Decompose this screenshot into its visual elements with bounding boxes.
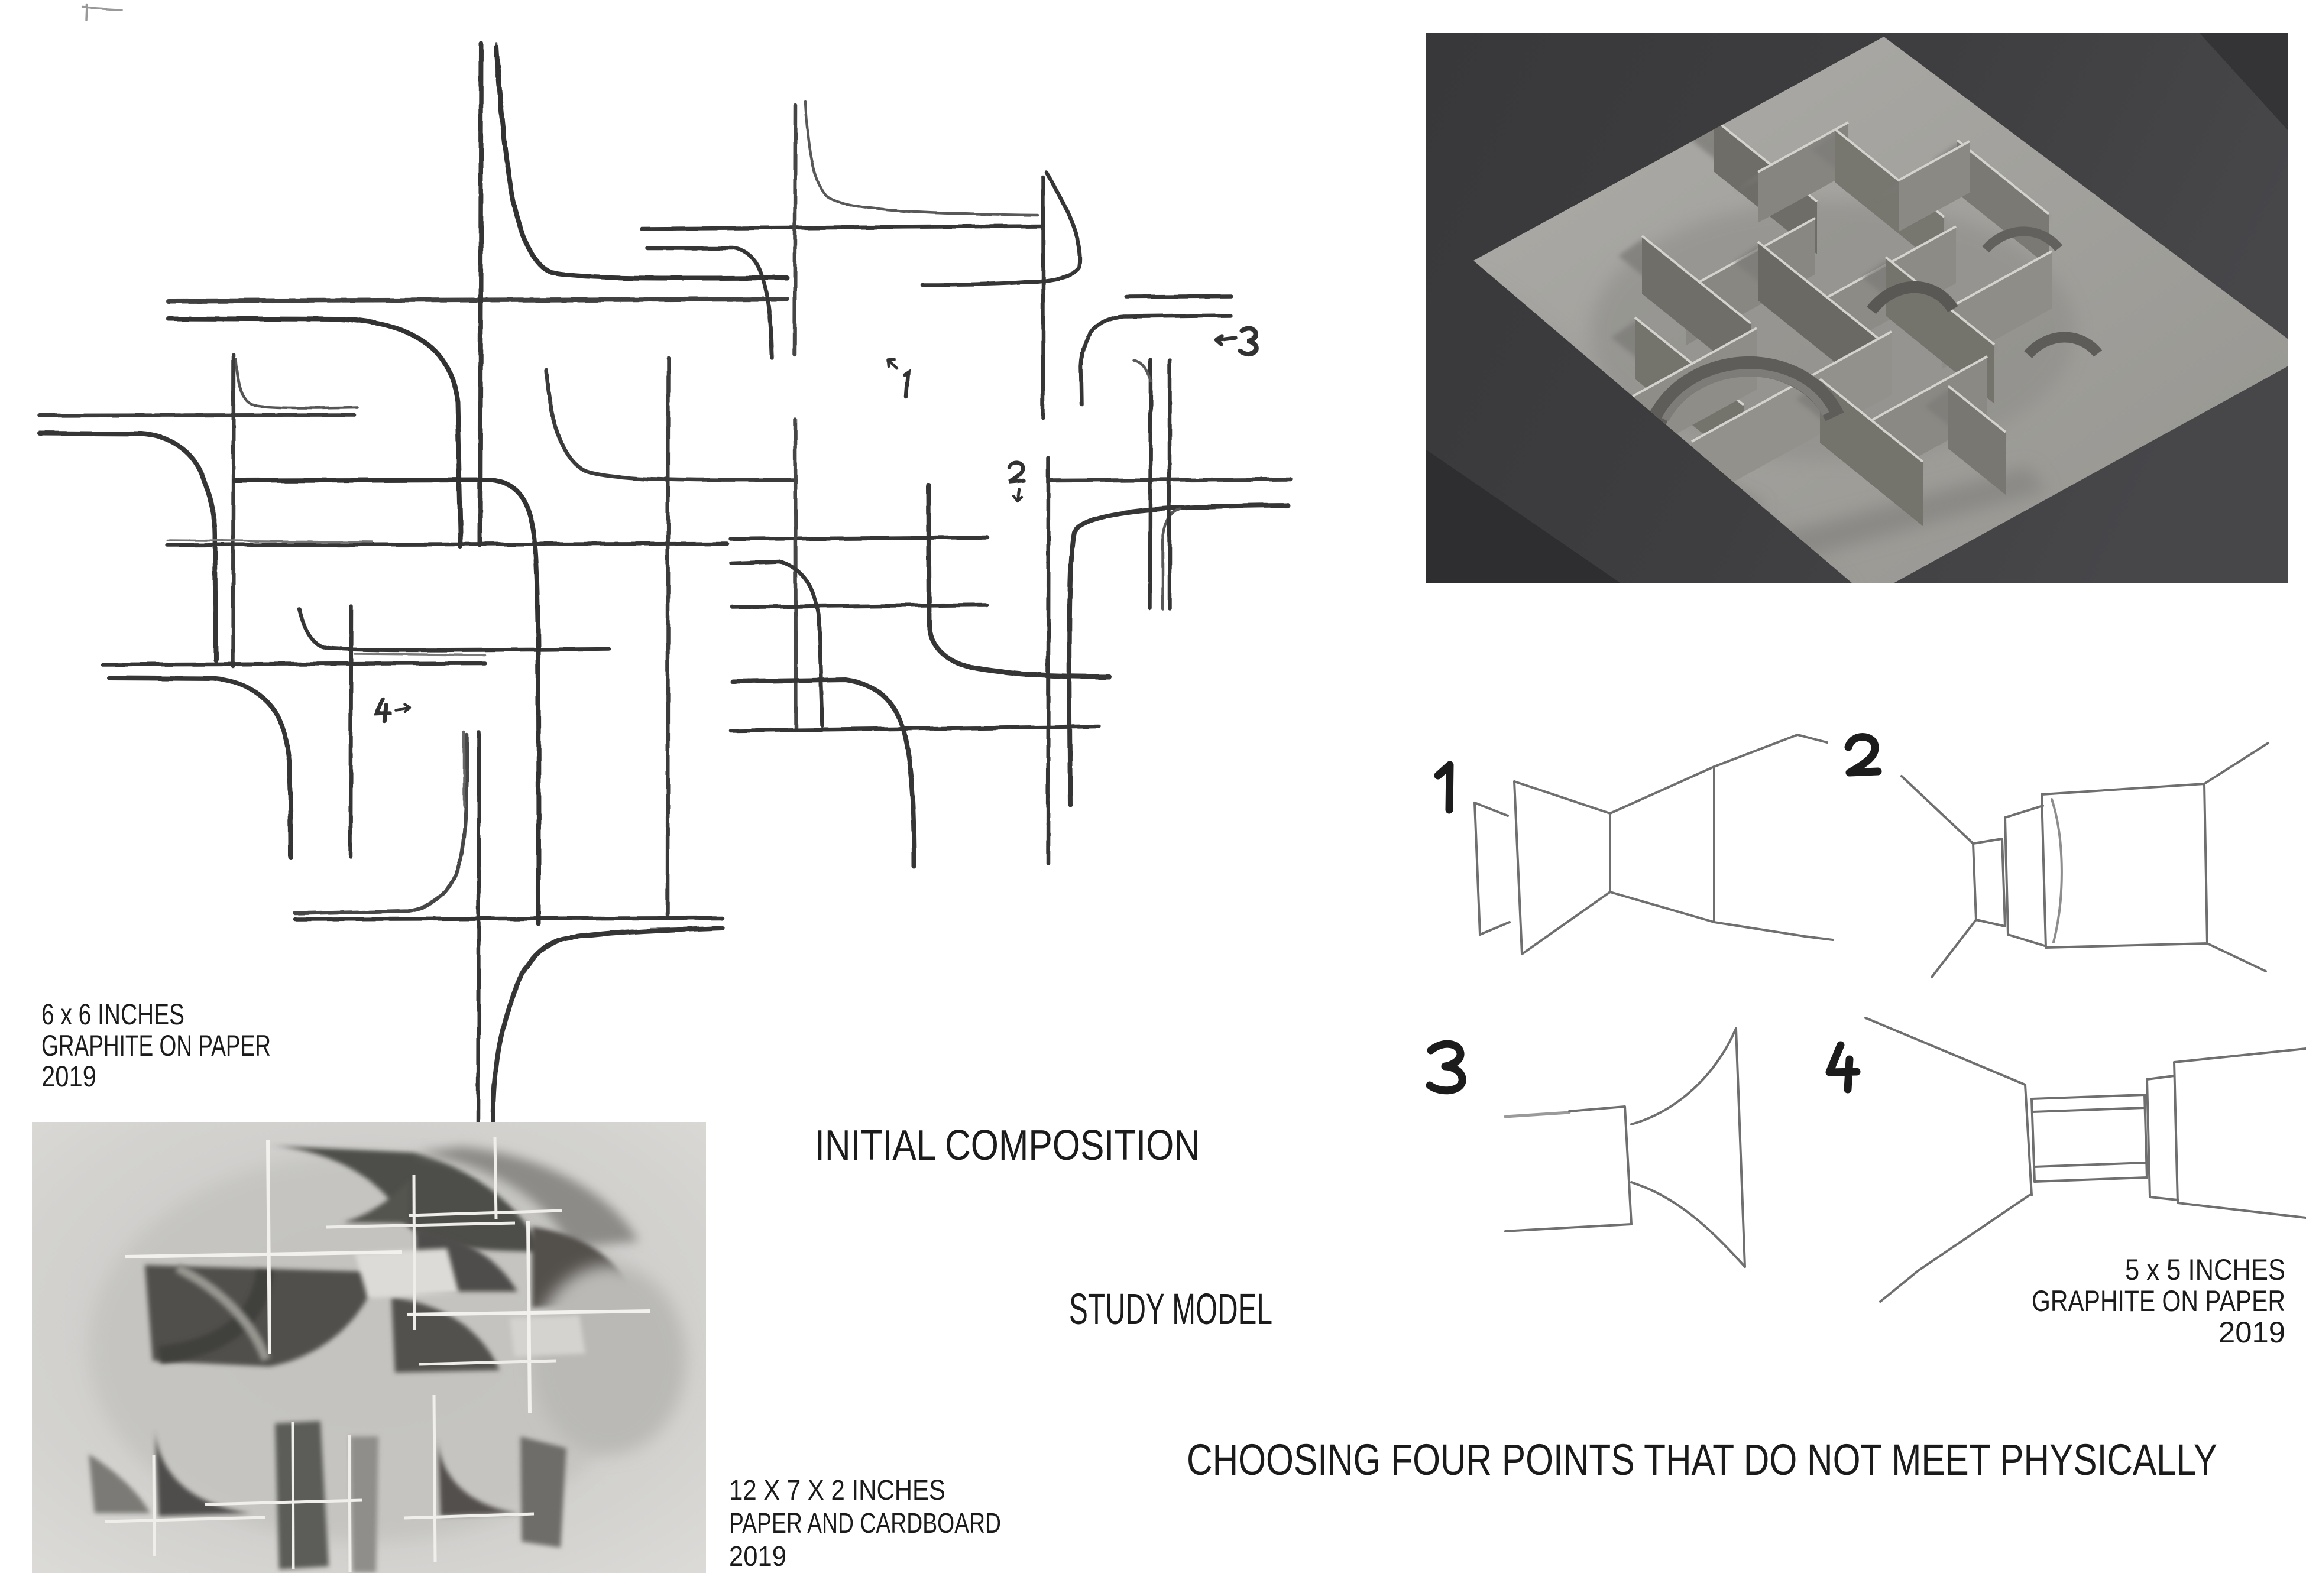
svg-text:GRAPHITE ON PAPER: GRAPHITE ON PAPER bbox=[41, 1029, 271, 1062]
svg-text:12 X 7 X 2 INCHES: 12 X 7 X 2 INCHES bbox=[729, 1475, 945, 1506]
svg-text:PAPER AND CARDBOARD: PAPER AND CARDBOARD bbox=[729, 1508, 1001, 1539]
svg-text:2019: 2019 bbox=[41, 1060, 96, 1093]
svg-text:GRAPHITE ON PAPER: GRAPHITE ON PAPER bbox=[2032, 1284, 2285, 1318]
svg-text:5 x 5 INCHES: 5 x 5 INCHES bbox=[2125, 1253, 2285, 1286]
svg-text:6 x 6 INCHES: 6 x 6 INCHES bbox=[41, 998, 184, 1031]
svg-text:CHOOSING FOUR POINTS THAT DO N: CHOOSING FOUR POINTS THAT DO NOT MEET PH… bbox=[1187, 1435, 2217, 1484]
svg-text:INITIAL COMPOSITION: INITIAL COMPOSITION bbox=[815, 1122, 1200, 1169]
svg-text:2019: 2019 bbox=[2218, 1316, 2285, 1349]
svg-text:2019: 2019 bbox=[729, 1541, 786, 1572]
svg-text:STUDY MODEL: STUDY MODEL bbox=[1069, 1284, 1272, 1334]
